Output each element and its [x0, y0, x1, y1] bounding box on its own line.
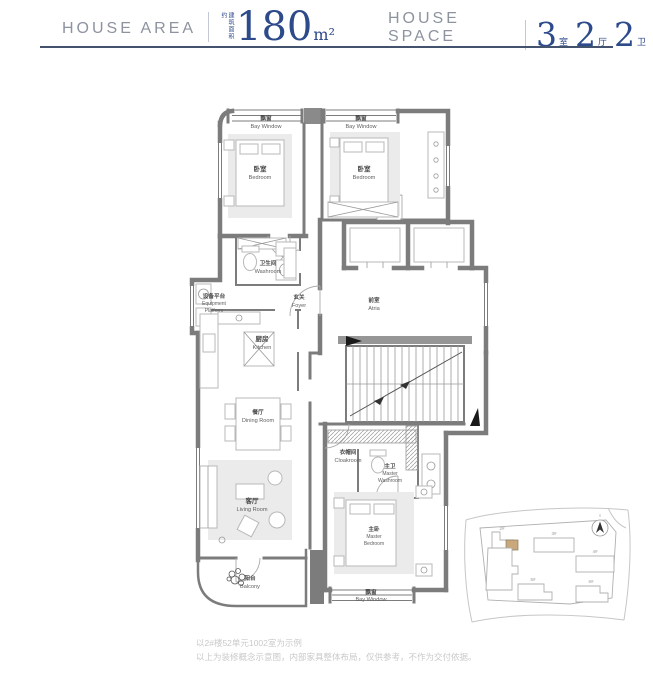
header-divider	[208, 12, 209, 42]
building-label: 4#	[592, 549, 598, 554]
label-master-bed-en2: Bedroom	[364, 541, 384, 547]
building-label: 2#	[499, 526, 505, 531]
label-dining-zh: 餐厅	[251, 408, 264, 416]
label-equipment-en2: Platform	[205, 308, 224, 314]
area-unit: m²	[313, 25, 335, 44]
label-bedroom-r-zh: 卧室	[358, 164, 372, 173]
label-bay-tr-en: Bay Window	[345, 124, 377, 130]
label-master-bed-zh: 主卧	[368, 525, 380, 533]
label-foyer-zh: 玄关	[293, 293, 305, 301]
label-washroom-zh: 卫生间	[260, 259, 277, 267]
label-dining-en: Dining Room	[242, 418, 275, 424]
header-rule	[40, 46, 613, 48]
area-note-vertical: 建筑面积约	[219, 12, 233, 42]
label-bay-tr-zh: 飘窗	[355, 114, 367, 122]
building	[576, 556, 614, 572]
label-bedroom-l-zh: 卧室	[254, 164, 268, 173]
bed-right	[328, 132, 444, 217]
label-bedroom-l-en: Bedroom	[249, 175, 272, 181]
label-washroom-en: Washroom	[255, 269, 282, 275]
label-atria-zh: 前室	[368, 296, 380, 304]
building-label: 3#	[551, 531, 557, 536]
footnote-line2: 以上为装修概念示意图，内部家具整体布局，仅供参考，不作为交付依据。	[196, 650, 477, 664]
label-equipment-zh: 设备平台	[203, 292, 226, 300]
building-label: 6#	[588, 579, 594, 584]
label-foyer-en: Foyer	[292, 303, 306, 309]
label-master-wash-en2: Washroom	[378, 478, 402, 484]
foyer-cabinet	[284, 248, 296, 278]
label-cloakroom-en: Cloakroom	[334, 458, 361, 464]
dining-set	[225, 398, 291, 450]
page: HOUSE AREA 建筑面积约 180 m² HOUSE SPACE 3 室 …	[0, 0, 653, 690]
label-atria-en: Atria	[368, 306, 380, 312]
label-kitchen-en: Kitchen	[253, 345, 272, 351]
building	[534, 538, 574, 552]
baths-count: 2	[614, 20, 635, 50]
siteplan-svg: 2# 3# 4# 5# 6#	[458, 500, 640, 625]
baths-unit: 卫	[637, 35, 646, 48]
building-label: 5#	[530, 577, 536, 582]
label-balcony-zh: 阳台	[244, 574, 256, 582]
house-area-label: HOUSE AREA	[62, 20, 196, 44]
label-balcony-en: Balcony	[240, 584, 260, 590]
label-cloakroom-zh: 衣帽间	[340, 448, 357, 456]
furniture	[196, 132, 480, 586]
north-compass	[592, 514, 608, 536]
stairs	[346, 336, 480, 426]
label-bay-b-zh: 飘窗	[365, 588, 377, 596]
master-bed	[334, 486, 432, 576]
label-living-en: Living Room	[236, 507, 267, 513]
label-bay-tl-zh: 飘窗	[260, 114, 272, 122]
label-bedroom-r-en: Bedroom	[353, 175, 376, 181]
footnotes: 以2#楼52单元1002室为示例 以上为装修概念示意图，内部家具整体布局，仅供参…	[196, 636, 477, 664]
label-kitchen-zh: 厨房	[256, 334, 270, 343]
house-area-header: HOUSE AREA 建筑面积约 180 m²	[62, 10, 335, 44]
label-master-wash-zh: 主卫	[384, 462, 396, 470]
area-value: 180	[236, 10, 312, 44]
label-equipment-en1: Equipment	[202, 301, 227, 307]
footnote-line1: 以2#楼52单元1002室为示例	[196, 636, 477, 650]
label-bay-b-en: Bay Window	[355, 597, 387, 603]
label-master-bed-en1: Master	[366, 534, 382, 540]
label-bay-tl-en: Bay Window	[250, 124, 282, 130]
label-master-wash-en1: Master	[382, 471, 398, 477]
label-living-zh: 客厅	[245, 496, 260, 505]
bed-left	[224, 134, 292, 249]
